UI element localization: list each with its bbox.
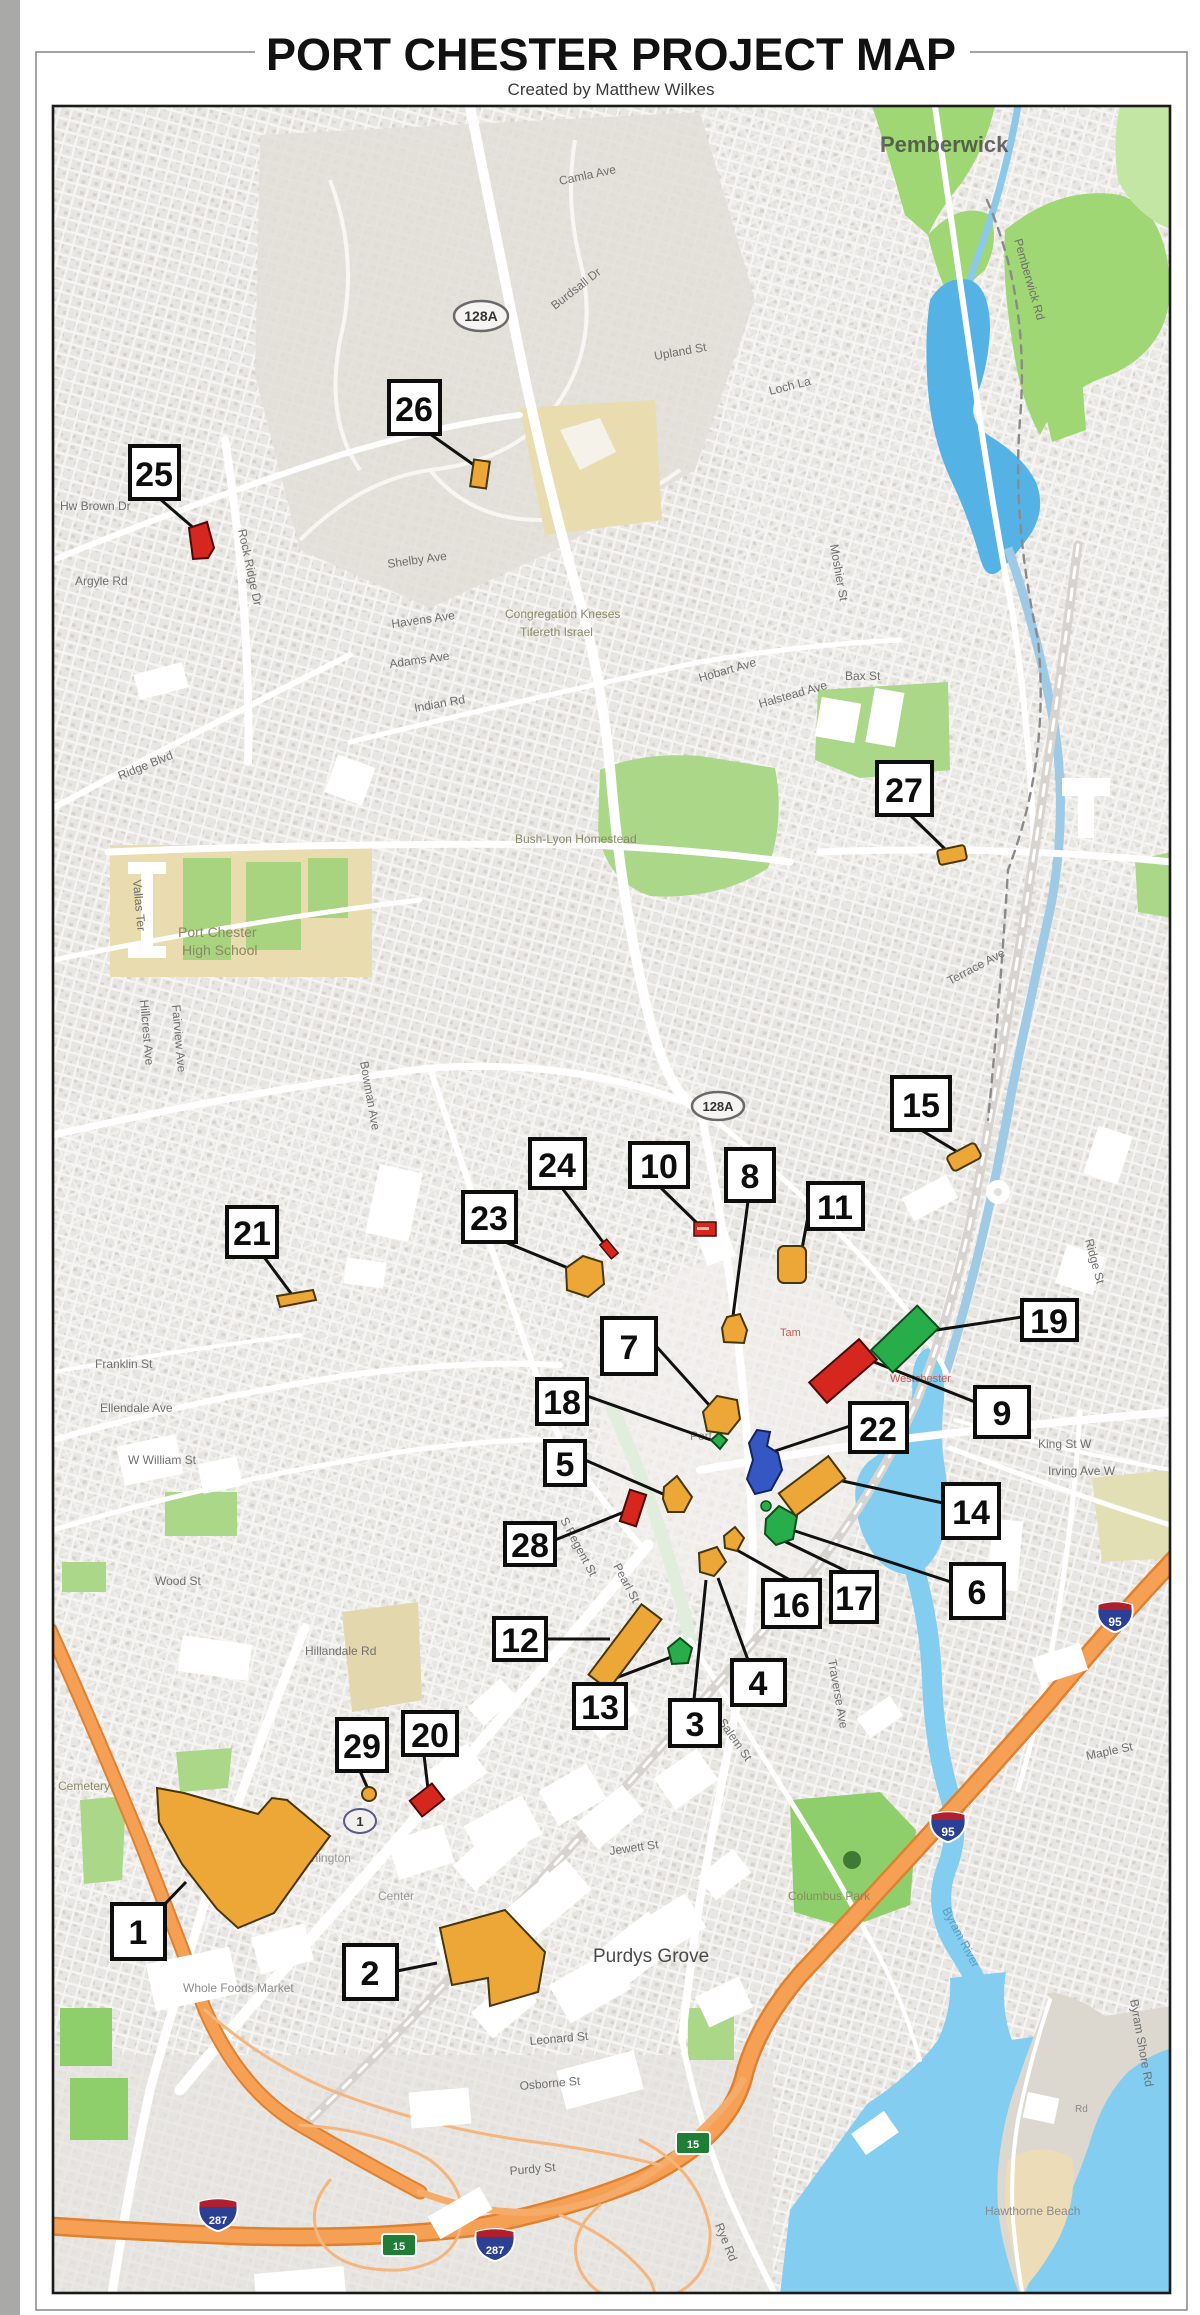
svg-text:W William St: W William St — [128, 1453, 197, 1467]
svg-text:287: 287 — [486, 2245, 504, 2257]
svg-text:15: 15 — [902, 1087, 940, 1125]
svg-text:Hw Brown Dr: Hw Brown Dr — [60, 499, 131, 513]
svg-text:Columbus Park: Columbus Park — [788, 1889, 871, 1903]
svg-text:1: 1 — [129, 1914, 148, 1952]
svg-text:Center: Center — [378, 1889, 414, 1903]
svg-text:Argyle Rd: Argyle Rd — [75, 574, 128, 588]
svg-text:128A: 128A — [702, 1099, 734, 1114]
svg-text:Pemberwick: Pemberwick — [880, 132, 1009, 157]
svg-text:27: 27 — [885, 772, 923, 810]
svg-text:10: 10 — [640, 1148, 678, 1186]
svg-text:High School: High School — [182, 942, 258, 958]
svg-text:Bax St: Bax St — [845, 669, 881, 683]
svg-text:20: 20 — [411, 1717, 449, 1755]
svg-text:Port Chester: Port Chester — [178, 924, 257, 940]
svg-text:15: 15 — [687, 2139, 699, 2151]
svg-text:King St W: King St W — [1038, 1437, 1092, 1451]
svg-text:11: 11 — [817, 1189, 853, 1227]
svg-text:PORT CHESTER PROJECT MAP: PORT CHESTER PROJECT MAP — [266, 29, 956, 80]
svg-text:Tifereth Israel: Tifereth Israel — [520, 625, 593, 639]
svg-text:Hillandale Rd: Hillandale Rd — [305, 1644, 376, 1658]
svg-text:21: 21 — [233, 1215, 271, 1253]
svg-text:Irving Ave W: Irving Ave W — [1048, 1464, 1116, 1478]
svg-text:Wood St: Wood St — [155, 1574, 201, 1588]
svg-text:12: 12 — [501, 1622, 539, 1660]
svg-text:17: 17 — [835, 1580, 873, 1618]
svg-text:25: 25 — [135, 456, 173, 494]
svg-text:5: 5 — [556, 1446, 575, 1484]
svg-text:9: 9 — [993, 1395, 1012, 1433]
svg-text:128A: 128A — [464, 308, 497, 324]
svg-text:95: 95 — [1108, 1615, 1122, 1629]
svg-text:16: 16 — [772, 1587, 810, 1625]
svg-text:Franklin St: Franklin St — [95, 1357, 153, 1371]
svg-text:14: 14 — [952, 1494, 990, 1532]
svg-text:22: 22 — [859, 1411, 897, 1449]
svg-text:Hawthorne Beach: Hawthorne Beach — [985, 2204, 1080, 2218]
svg-text:24: 24 — [538, 1147, 576, 1185]
svg-text:7: 7 — [620, 1329, 639, 1367]
svg-text:4: 4 — [749, 1665, 768, 1703]
svg-text:Bush-Lyon Homestead: Bush-Lyon Homestead — [515, 832, 637, 846]
svg-text:Whole Foods Market: Whole Foods Market — [183, 1981, 294, 1995]
svg-text:15: 15 — [393, 2241, 405, 2253]
svg-text:6: 6 — [968, 1574, 987, 1612]
svg-text:13: 13 — [581, 1689, 619, 1727]
svg-text:26: 26 — [395, 391, 433, 429]
svg-text:Cemetery: Cemetery — [58, 1779, 110, 1793]
svg-text:Purdys Grove: Purdys Grove — [593, 1946, 709, 1967]
svg-text:95: 95 — [941, 1825, 955, 1839]
svg-text:1: 1 — [356, 1814, 363, 1829]
svg-text:Ellendale Ave: Ellendale Ave — [100, 1401, 173, 1415]
svg-text:Created by Matthew Wilkes: Created by Matthew Wilkes — [508, 80, 715, 99]
svg-text:Congregation Kneses: Congregation Kneses — [505, 607, 620, 621]
svg-text:Rd: Rd — [1075, 2104, 1088, 2115]
svg-text:287: 287 — [209, 2215, 227, 2227]
svg-text:28: 28 — [511, 1527, 549, 1565]
svg-text:3: 3 — [686, 1706, 705, 1744]
svg-text:23: 23 — [470, 1200, 508, 1238]
svg-text:8: 8 — [741, 1158, 760, 1196]
svg-text:2: 2 — [361, 1955, 380, 1993]
svg-text:Tam: Tam — [780, 1327, 801, 1339]
svg-text:19: 19 — [1030, 1303, 1068, 1341]
svg-text:29: 29 — [343, 1728, 381, 1766]
svg-text:18: 18 — [543, 1384, 581, 1422]
